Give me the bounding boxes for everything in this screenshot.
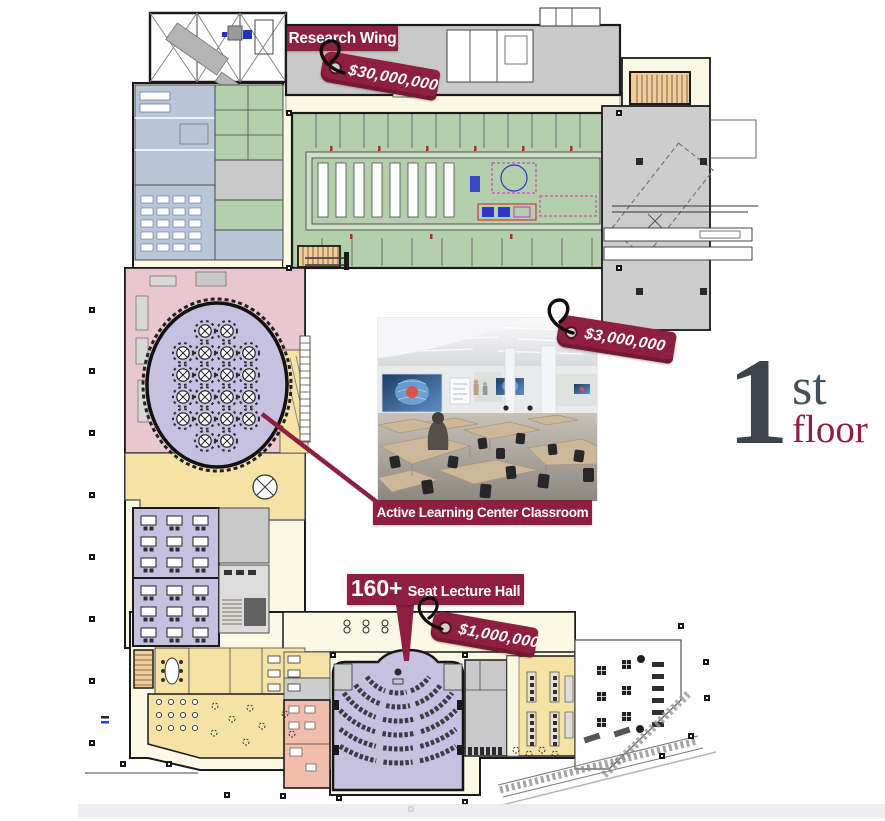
active-learning-classroom-label: Active Learning Center Classroom — [377, 505, 589, 520]
floor-word: floor — [792, 411, 868, 448]
floor-number: 1 — [727, 352, 789, 451]
page-root: Research Wing $30,000,000 $3,000,000 Act… — [0, 0, 885, 821]
price-tag-string-icon — [314, 38, 350, 78]
region-av-room — [465, 660, 507, 756]
region-active-learning-oval — [143, 299, 291, 471]
lecture-hall-seat-count: 160+ — [351, 577, 403, 600]
region-loading-dock — [602, 58, 758, 330]
floor-ordinal: st — [792, 366, 868, 410]
price-tag-string-icon — [412, 595, 448, 633]
price-tag-string-icon — [541, 297, 579, 337]
active-learning-classroom-banner: Active Learning Center Classroom — [373, 500, 592, 525]
floor-indicator: 1 st floor — [727, 352, 868, 451]
classroom-price: $3,000,000 — [583, 325, 668, 355]
region-classrooms — [133, 508, 269, 646]
region-bottom-wing — [284, 650, 575, 790]
